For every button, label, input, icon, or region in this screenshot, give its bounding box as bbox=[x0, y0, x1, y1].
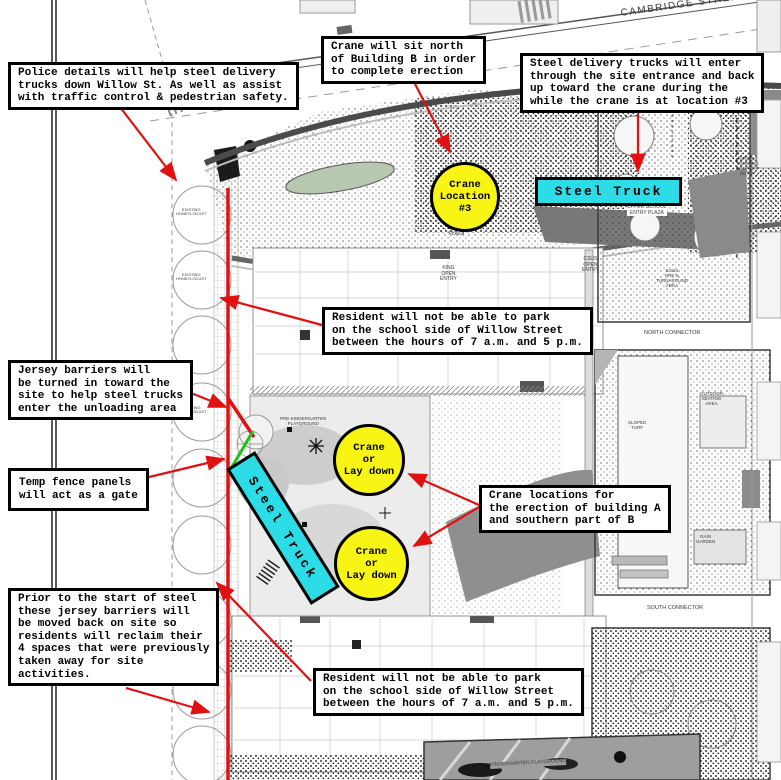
plan-label-pre-kindergarten: PRE-KINDERGARTEN PLAYGROUND bbox=[280, 416, 326, 426]
plan-label-outdoor: OUTDOOR SEATING AREA bbox=[700, 391, 723, 406]
note-police-details: Police details will help steel delivery … bbox=[8, 62, 299, 110]
note-steel-delivery: Steel delivery trucks will enter through… bbox=[520, 53, 764, 113]
note-resident-parking-bottom: Resident will not be able to park on the… bbox=[313, 668, 584, 716]
note-crane-locations: Crane locations for the erection of buil… bbox=[479, 485, 671, 533]
plan-label-rain: RAIN GARDEN bbox=[696, 534, 715, 544]
plan-label-existing: EXISTING HONEYLOCUST bbox=[176, 273, 206, 282]
plan-label-existing: EXISTING HONEYLOCUST bbox=[176, 208, 206, 217]
plan-label-kocsus: KOCSUS MORNING DROP-OFF ENTRY bbox=[736, 156, 760, 176]
plan-label-south-connector: SOUTH CONNECTOR bbox=[647, 605, 703, 611]
plan-label-upper-school: UPPER SCHOOL ENTRY PLAZA bbox=[627, 205, 667, 216]
note-prior-steel: Prior to the start of steel these jersey… bbox=[8, 588, 219, 686]
note-crane-north: Crane will sit north of Building B in or… bbox=[321, 36, 486, 84]
plan-label-king: KING OPEN ENTRY bbox=[440, 266, 457, 283]
site-logistics-plan: Crane Location #3 Crane or Lay down Cran… bbox=[0, 0, 781, 780]
note-jersey-barriers: Jersey barriers will be turned in toward… bbox=[8, 360, 193, 420]
crane-or-laydown-north-marker: Crane or Lay down bbox=[333, 424, 405, 496]
plan-label-csus: CSUS OPEN ENTRY bbox=[582, 257, 599, 274]
crane-location-3-marker: Crane Location #3 bbox=[430, 162, 500, 232]
steel-truck-north-marker: Steel Truck bbox=[535, 177, 682, 206]
crane-or-laydown-south-marker: Crane or Lay down bbox=[334, 526, 409, 601]
note-temp-fence: Temp fence panels will act as a gate bbox=[8, 468, 149, 511]
plan-label-north-connector: NORTH CONNECTOR bbox=[644, 330, 700, 336]
note-resident-parking-top: Resident will not be able to park on the… bbox=[322, 307, 593, 355]
plan-label-csus: CSUS PRE-K TURNAROUND AREA bbox=[656, 268, 688, 288]
plan-label-sloped: SLOPED TURF bbox=[628, 420, 646, 430]
